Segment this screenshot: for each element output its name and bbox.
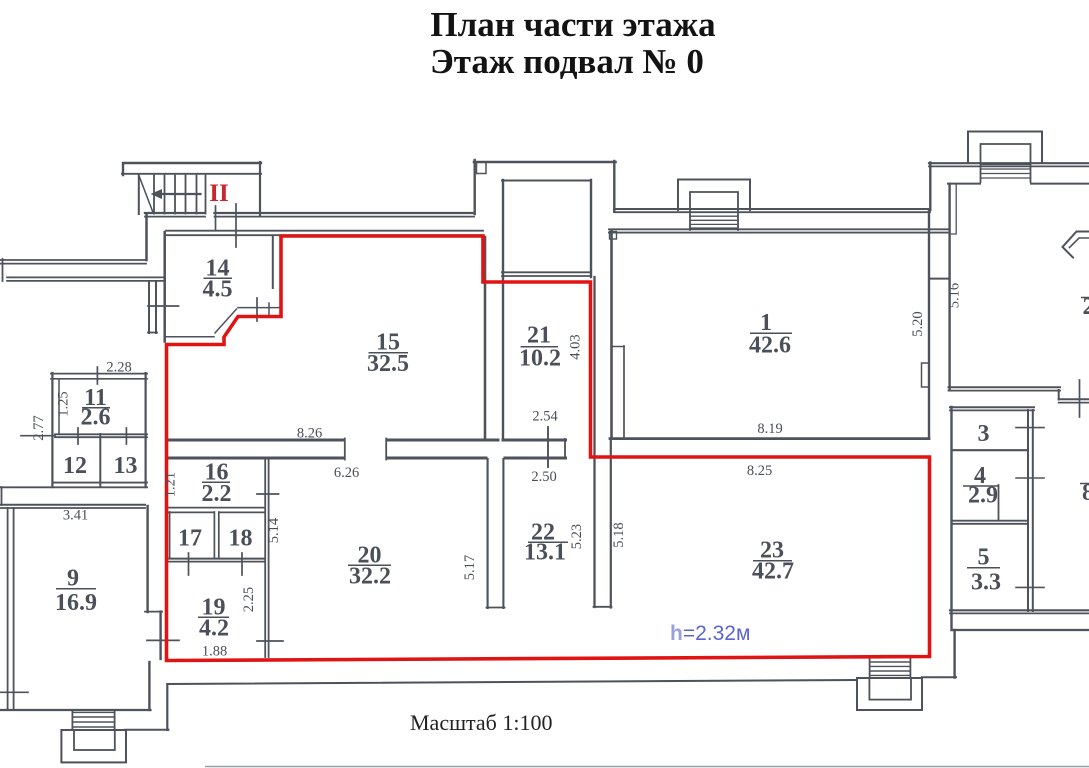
svg-text:h=2.32м: h=2.32м	[670, 622, 750, 645]
svg-text:42.7: 42.7	[752, 559, 794, 585]
svg-text:3.3: 3.3	[971, 570, 1001, 596]
svg-text:5.23: 5.23	[569, 524, 585, 549]
svg-text:5.16: 5.16	[947, 283, 963, 308]
svg-text:Этаж подвал № 0: Этаж подвал № 0	[430, 42, 704, 81]
svg-text:1.25: 1.25	[56, 391, 72, 416]
svg-text:18: 18	[229, 526, 253, 552]
svg-text:16.9: 16.9	[55, 590, 97, 616]
svg-text:32.5: 32.5	[367, 351, 409, 377]
svg-text:17: 17	[178, 526, 202, 552]
svg-text:Масштаб 1:100: Масштаб 1:100	[410, 710, 552, 735]
svg-text:8: 8	[1082, 480, 1089, 506]
svg-text:12: 12	[63, 453, 87, 479]
svg-text:2.9: 2.9	[968, 483, 998, 509]
svg-text:2.25: 2.25	[241, 587, 257, 612]
svg-text:10.2: 10.2	[519, 346, 561, 372]
svg-text:II: II	[209, 180, 228, 207]
svg-text:2.28: 2.28	[106, 360, 131, 376]
svg-text:3: 3	[978, 421, 990, 447]
svg-text:4.03: 4.03	[568, 334, 584, 359]
svg-text:5.18: 5.18	[611, 522, 627, 547]
svg-text:32.2: 32.2	[349, 564, 391, 590]
svg-text:2.6: 2.6	[81, 405, 111, 431]
svg-text:1.88: 1.88	[202, 644, 227, 660]
svg-text:2.50: 2.50	[531, 469, 556, 485]
svg-text:2: 2	[1083, 294, 1089, 320]
svg-text:5.17: 5.17	[462, 555, 478, 580]
svg-text:4.5: 4.5	[203, 277, 233, 303]
svg-text:13.1: 13.1	[524, 540, 566, 566]
svg-text:3.41: 3.41	[63, 508, 88, 524]
svg-text:8.19: 8.19	[757, 421, 782, 437]
svg-text:6.26: 6.26	[334, 465, 359, 481]
svg-text:13: 13	[114, 453, 138, 479]
svg-text:5.14: 5.14	[266, 517, 282, 543]
svg-text:5: 5	[978, 545, 990, 571]
svg-text:2.77: 2.77	[31, 415, 47, 440]
svg-text:42.6: 42.6	[749, 333, 791, 359]
svg-text:1.21: 1.21	[163, 472, 179, 497]
svg-text:8.26: 8.26	[297, 426, 322, 442]
svg-text:2.54: 2.54	[532, 409, 558, 425]
svg-text:План части этажа: План части этажа	[430, 5, 715, 44]
svg-text:8.25: 8.25	[747, 463, 772, 479]
svg-text:5.20: 5.20	[910, 311, 926, 336]
svg-text:4.2: 4.2	[199, 616, 229, 642]
svg-text:2.2: 2.2	[202, 481, 232, 507]
svg-text:9: 9	[67, 566, 79, 592]
